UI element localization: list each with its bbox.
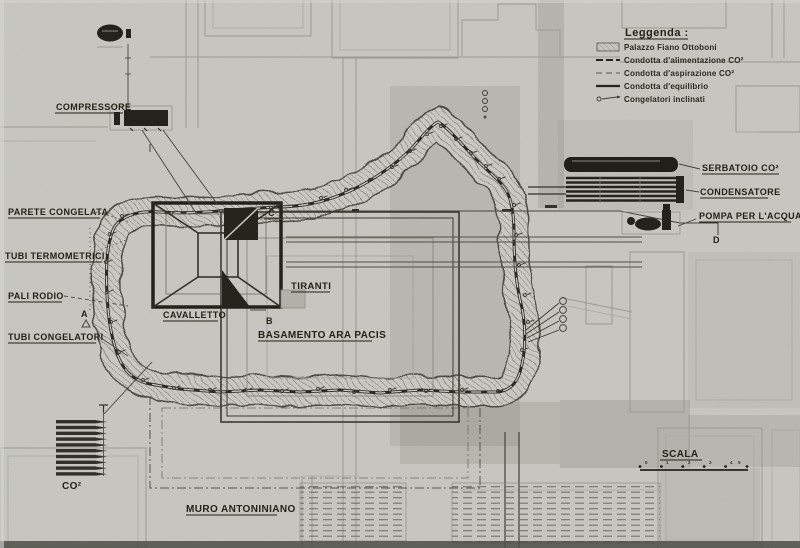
- co2-label: CO²: [62, 481, 82, 492]
- pump-icon: [635, 218, 661, 231]
- compressore-label: COMPRESSORE: [56, 102, 131, 112]
- section-marker-d: D: [713, 235, 720, 245]
- legend-item-congelatori: Congelatori inclinati: [624, 95, 705, 104]
- section-marker-c: C: [268, 208, 275, 218]
- cavalletto-label: CAVALLETTO: [163, 310, 226, 320]
- tiranti-label: TIRANTI: [291, 281, 331, 292]
- palazzo-swatch-icon: [597, 43, 619, 51]
- section-marker-a: A: [81, 309, 88, 319]
- tank-icon: [97, 25, 123, 42]
- legend-item-palazzo: Palazzo Fiano Ottoboni: [624, 43, 717, 52]
- tubi-congelatori-label: TUBI CONGELATORI: [8, 332, 104, 342]
- pompa-label: POMPA PER L'ACQUA: [699, 211, 800, 221]
- legend-title: Leggenda :: [625, 27, 689, 39]
- serbatoio-icon: [564, 157, 678, 172]
- parete-congelata-label: PARETE CONGELATA: [8, 207, 108, 217]
- ara-pacis-freezing-plan: COMPRESSORE PARETE CONGELATA TUBI TERMOM…: [0, 0, 800, 548]
- scale-label: SCALA: [662, 449, 698, 460]
- muro-antoniniano-label: MURO ANTONINIANO: [186, 504, 296, 515]
- tubi-termometrici-label: TUBI TERMOMETRICI: [5, 251, 105, 261]
- pali-rodio-label: PALI RODIO: [8, 291, 64, 301]
- serbatoio-label: SERBATOIO CO²: [702, 163, 779, 173]
- legend-item-alimentazione: Condotta d'alimentazione CO²: [624, 56, 744, 65]
- site-plan-photo: COMPRESSORE PARETE CONGELATA TUBI TERMOM…: [0, 0, 800, 548]
- section-marker-b: B: [266, 316, 273, 326]
- legend-item-equilibrio: Condotta d'equilibrio: [624, 82, 708, 91]
- condensatore-label: CONDENSATORE: [700, 187, 780, 197]
- basamento-label: BASAMENTO ARA PACIS: [258, 330, 386, 341]
- compressor-icon: [124, 110, 168, 126]
- legend-item-aspirazione: Condotta d'aspirazione CO²: [624, 69, 734, 78]
